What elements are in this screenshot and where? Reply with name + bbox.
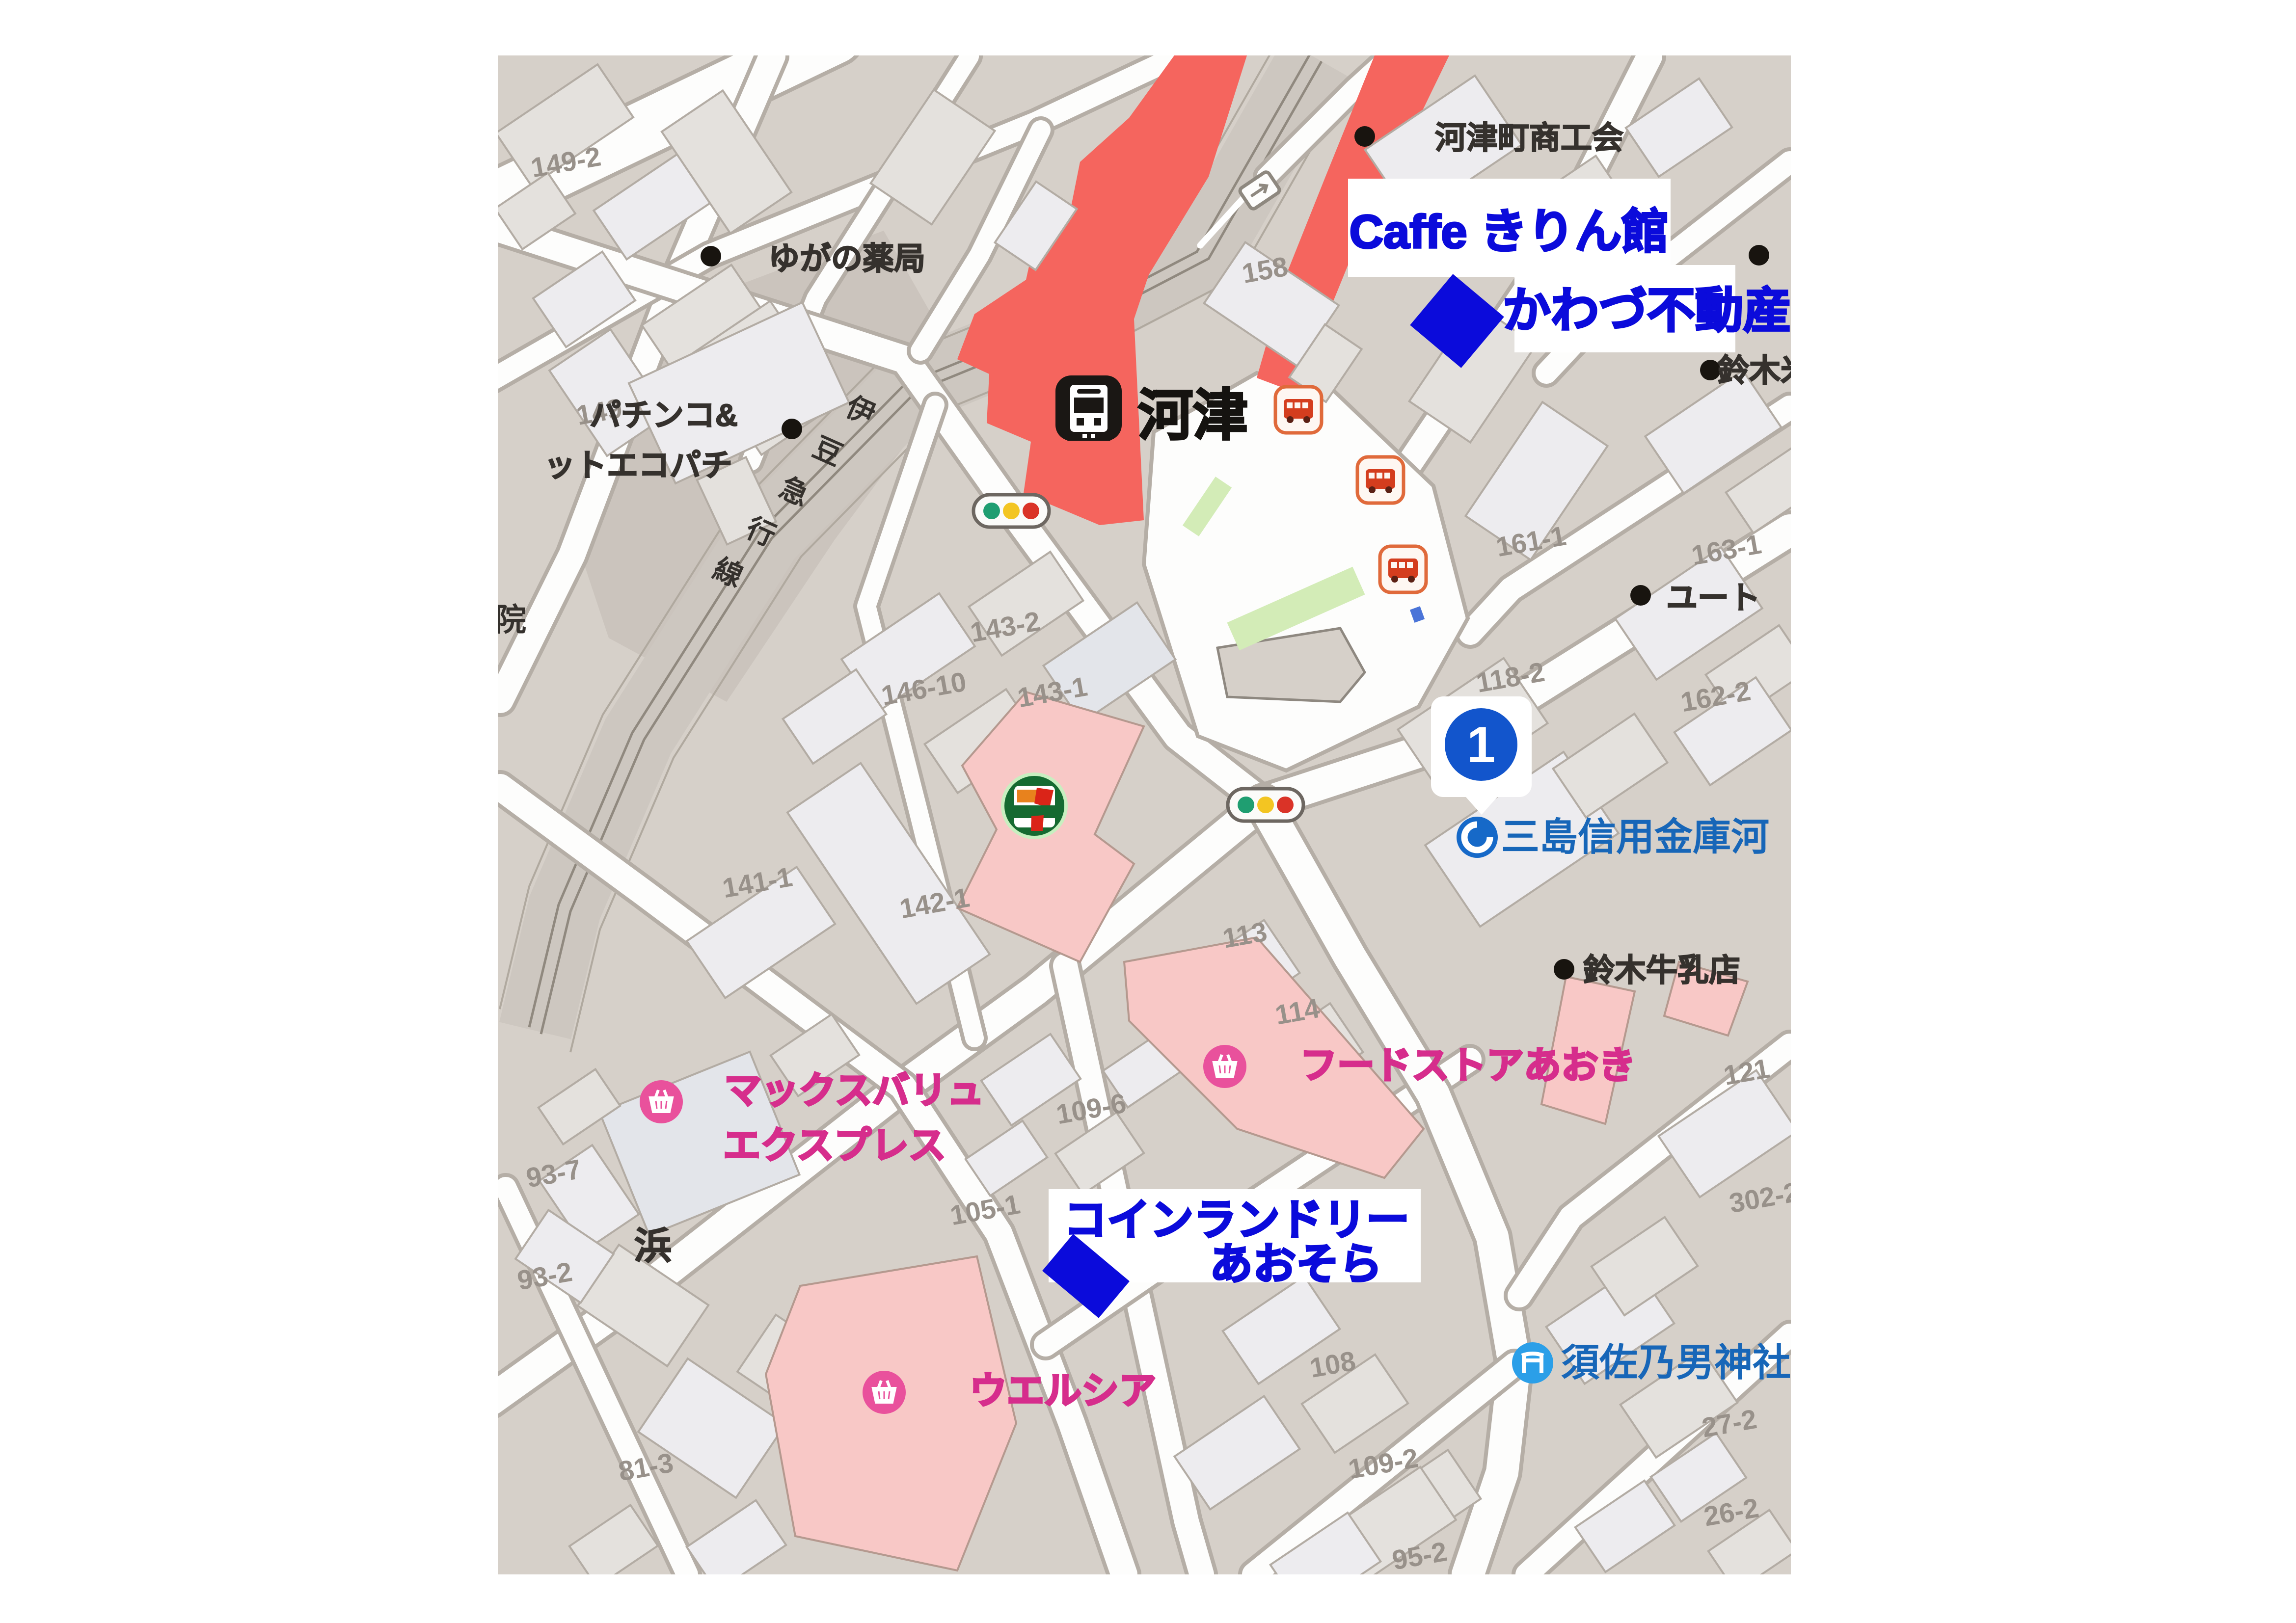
svg-text:1: 1 xyxy=(1467,717,1495,773)
svg-text:浜: 浜 xyxy=(634,1225,672,1267)
svg-text:ットエコパチ: ットエコパチ xyxy=(544,448,732,483)
svg-text:コインランドリー: コインランドリー xyxy=(1064,1196,1409,1244)
svg-text:Caffe きりん館: Caffe きりん館 xyxy=(1350,206,1669,258)
svg-text:須佐乃男神社: 須佐乃男神社 xyxy=(1561,1341,1791,1384)
svg-text:ウエルシア: ウエルシア xyxy=(970,1370,1156,1412)
svg-text:ユート: ユート xyxy=(1666,580,1760,615)
svg-text:ゆがの薬局: ゆがの薬局 xyxy=(768,241,925,276)
svg-text:河津: 河津 xyxy=(1138,385,1248,446)
svg-text:三島信用金庫河: 三島信用金庫河 xyxy=(1501,815,1769,858)
svg-text:河津町商工会: 河津町商工会 xyxy=(1435,120,1623,156)
svg-text:あおそら: あおそら xyxy=(1210,1240,1382,1288)
svg-text:鈴木牛乳店: 鈴木牛乳店 xyxy=(1583,953,1740,988)
svg-text:かわづ不動産: かわづ不動産 xyxy=(1503,283,1791,337)
svg-text:院: 院 xyxy=(495,602,526,638)
svg-text:フードストアあおき: フードストアあおき xyxy=(1300,1045,1636,1087)
svg-text:マックスバリュ: マックスバリュ xyxy=(724,1070,984,1112)
svg-text:エクスプレス: エクスプレス xyxy=(723,1125,946,1167)
svg-text:パチンコ&: パチンコ& xyxy=(590,398,738,433)
